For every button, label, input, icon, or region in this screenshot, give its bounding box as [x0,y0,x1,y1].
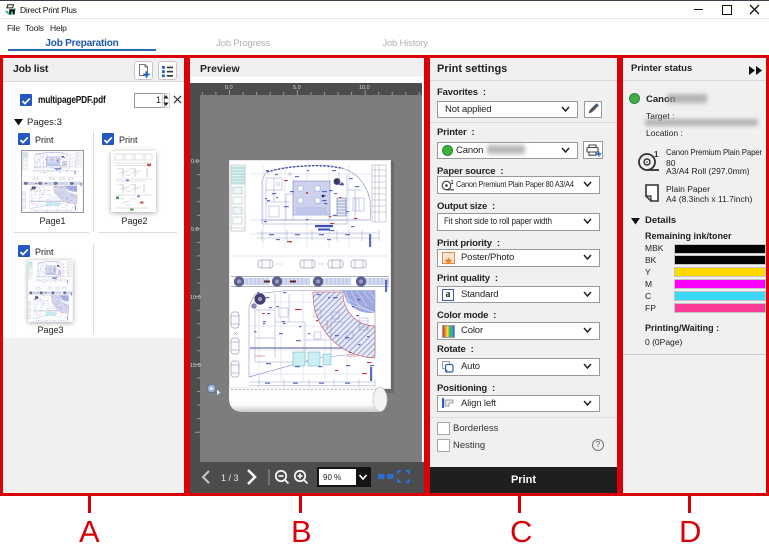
svg-text:10.0: 10.0 [359,85,370,91]
svg-text:15.0: 15.0 [190,363,201,369]
svg-text:5.0: 5.0 [191,227,199,233]
svg-text:0.0: 0.0 [225,85,233,91]
svg-text:10.0: 10.0 [190,295,201,301]
svg-text:5.0: 5.0 [293,85,301,91]
svg-text:0.0: 0.0 [191,159,199,165]
svg-text:1: 1 [451,180,454,186]
svg-text:1 / 3: 1 / 3 [221,473,239,483]
svg-text:1: 1 [654,150,659,159]
svg-text:90 %: 90 % [323,473,341,482]
